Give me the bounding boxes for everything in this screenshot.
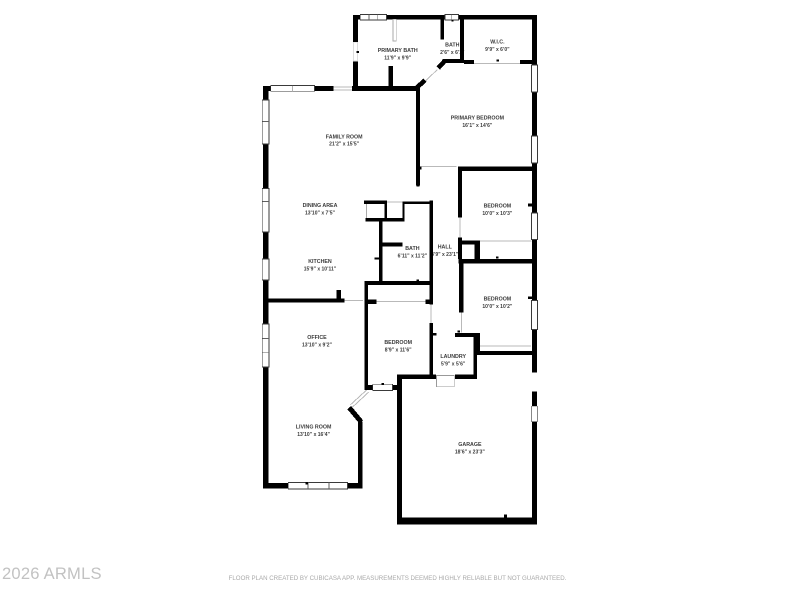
- svg-text:21’2” x 15’5”: 21’2” x 15’5”: [329, 142, 360, 148]
- svg-text:LIVING ROOM: LIVING ROOM: [296, 425, 332, 431]
- svg-text:9’9” x 6’0”: 9’9” x 6’0”: [485, 47, 510, 53]
- svg-text:18’6” x 23’3”: 18’6” x 23’3”: [455, 450, 486, 456]
- svg-text:PRIMARY BATH: PRIMARY BATH: [378, 48, 418, 54]
- svg-text:LAUNDRY: LAUNDRY: [440, 354, 466, 360]
- svg-text:8’9” x 11’6”: 8’9” x 11’6”: [385, 347, 412, 353]
- svg-text:3’9” x 23’1”: 3’9” x 23’1”: [431, 252, 459, 258]
- svg-text:10’0” x 10’3”: 10’0” x 10’3”: [482, 211, 513, 217]
- svg-text:15’9” x 10’11”: 15’9” x 10’11”: [304, 266, 337, 272]
- svg-text:BEDROOM: BEDROOM: [384, 340, 412, 346]
- svg-text:BATH: BATH: [405, 246, 419, 252]
- svg-text:13’10” x 7’5”: 13’10” x 7’5”: [305, 210, 336, 216]
- svg-text:5’9” x 5’6”: 5’9” x 5’6”: [441, 362, 466, 368]
- svg-text:10’0” x 10’2”: 10’0” x 10’2”: [482, 304, 513, 310]
- svg-text:13’10” x 16’4”: 13’10” x 16’4”: [297, 432, 330, 438]
- svg-text:HALL: HALL: [438, 245, 453, 251]
- svg-text:PRIMARY BEDROOM: PRIMARY BEDROOM: [451, 116, 505, 122]
- svg-text:W.I.C.: W.I.C.: [490, 40, 505, 46]
- svg-text:16’1” x 14’6”: 16’1” x 14’6”: [462, 123, 493, 129]
- svg-text:BEDROOM: BEDROOM: [484, 204, 512, 210]
- svg-text:OFFICE: OFFICE: [307, 335, 327, 341]
- svg-text:BATH: BATH: [445, 43, 459, 49]
- svg-text:KITCHEN: KITCHEN: [308, 259, 332, 265]
- svg-text:DINING AREA: DINING AREA: [303, 203, 338, 209]
- svg-text:11’9” x 9’9”: 11’9” x 9’9”: [384, 55, 411, 61]
- svg-text:6’11” x 11’2”: 6’11” x 11’2”: [398, 253, 428, 259]
- svg-text:BEDROOM: BEDROOM: [484, 297, 512, 303]
- svg-text:FAMILY ROOM: FAMILY ROOM: [326, 134, 363, 140]
- svg-text:13’10” x 9’2”: 13’10” x 9’2”: [302, 343, 333, 349]
- svg-text:GARAGE: GARAGE: [458, 442, 482, 448]
